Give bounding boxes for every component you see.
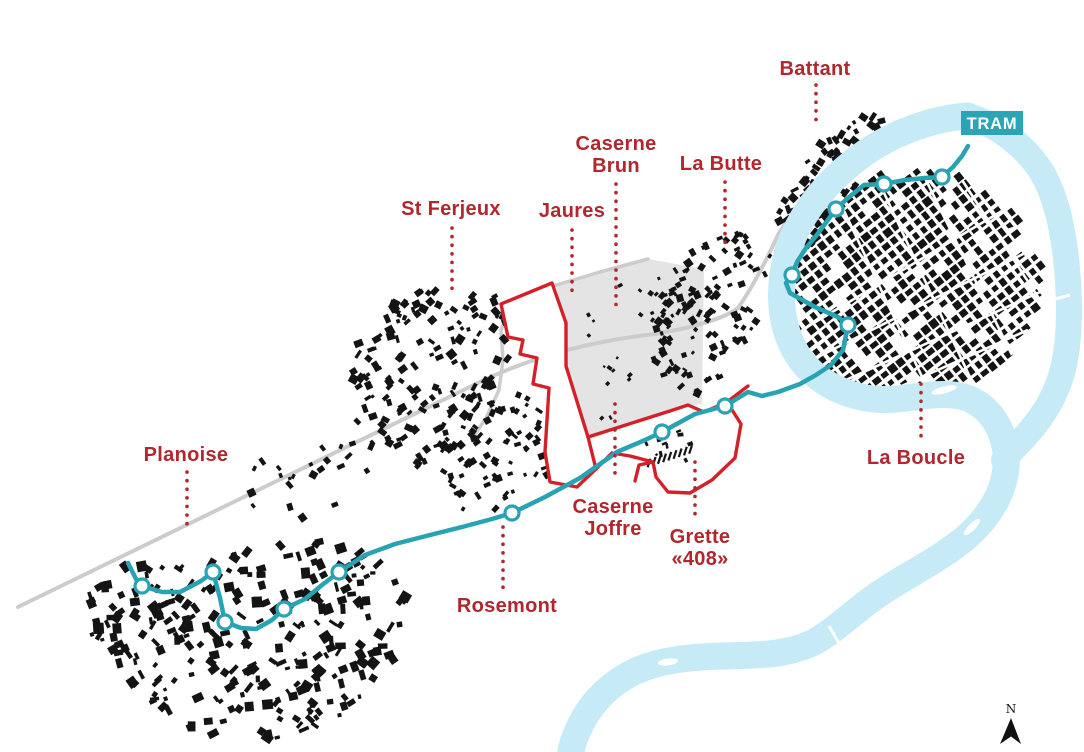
north-arrow-label: N [1006,702,1017,716]
river-bridge [1008,219,1044,230]
north-arrow: N [1000,702,1021,744]
tram-stop [277,602,291,616]
tram-stop [505,506,519,520]
district-label-planoise: Planoise [144,444,229,466]
tram-stop [935,170,949,184]
tram-badge: TRAM [961,111,1023,135]
district-label-caserne-brun: Caserne [575,133,656,155]
tram-stop [135,579,149,593]
district-label-caserne-joffre: Caserne [572,496,653,518]
district-label-st-ferjeux: St Ferjeux [401,198,501,220]
district-label-caserne-brun: Brun [592,155,640,177]
district-label-grette-408: «408» [671,548,728,570]
district-battant: Battant [780,58,851,122]
tram-badge-label: TRAM [967,115,1018,133]
tram-stop [829,202,843,216]
tram-stop [206,565,220,579]
district-label-la-boucle: La Boucle [867,447,965,469]
north-arrow-icon [1000,718,1021,744]
district-grette-408: Grette«408» [670,462,731,570]
district-planoise: Planoise [144,444,229,528]
tram-stop [332,565,346,579]
district-label-caserne-joffre: Joffre [584,518,641,540]
district-label-rosemont: Rosemont [457,595,557,617]
building-cluster-planoise [86,538,412,744]
building-cluster-mid-sparse [246,440,370,522]
tram-stop [655,425,669,439]
district-rosemont: Rosemont [457,527,557,617]
tram-stop [718,399,732,413]
tram-stop [841,318,855,332]
district-label-battant: Battant [780,58,851,80]
district-label-la-butte: La Butte [680,153,762,175]
river-island [931,135,951,151]
tram-stop [218,615,232,629]
district-la-butte: La Butte [680,153,762,248]
tram-stop [877,177,891,191]
tram-map: BattantCaserneBrunLa ButteSt FerjeuxJaur… [0,0,1084,752]
map-canvas: BattantCaserneBrunLa ButteSt FerjeuxJaur… [0,0,1084,752]
district-st-ferjeux: St Ferjeux [401,198,501,290]
district-label-jaures: Jaures [539,200,605,222]
district-label-grette-408: Grette [670,526,731,548]
tram-stop [785,268,799,282]
